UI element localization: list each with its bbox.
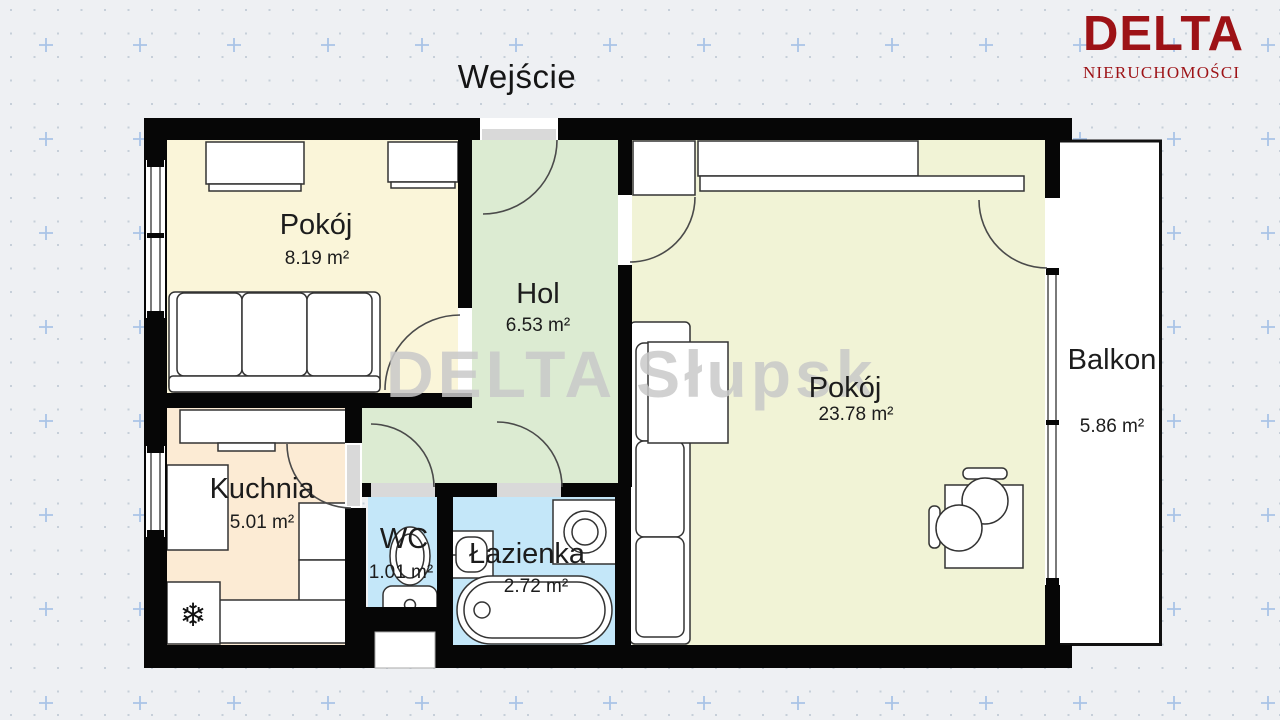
side-table [388,142,458,182]
wall-kuchnia-hol-upper [345,408,362,443]
entrance-title: Wejście [397,58,637,96]
kitchen-counter-bottom [218,600,352,643]
watermark: DELTA Słupsk [386,337,876,411]
entrance-threshold [482,129,556,140]
wall-lazienka-pokoj2 [615,487,631,648]
window-cap [147,233,164,238]
window-balcony [1045,268,1060,585]
window-cap [1046,420,1059,425]
label-pokoj-2: Pokój [809,372,882,404]
area-pokoj-1: 8.19 m² [285,248,349,269]
wall-bottom [144,645,1072,668]
sofa-cushion [636,441,684,537]
kitchen-counter-top [180,410,357,443]
area-pokoj-2: 23.78 m² [819,404,894,425]
area-wc: 1.01 m² [369,562,433,583]
wall-wc-lazienka-top [435,483,497,497]
agency-logo: DELTA NIERUCHOMOŚCI [1083,10,1244,81]
floor-plan-page: ❄ [0,0,1280,720]
label-pokoj-1: Pokój [280,209,353,241]
floor-hol-corridor [362,408,618,483]
wall-top-right [558,118,1072,140]
open-door-leaf [633,141,695,195]
window-pokoj1 [146,160,165,318]
wall-lazienka-top [561,483,618,497]
label-wc: WC [380,523,428,555]
sofa-cushion [307,293,372,376]
wardrobe [698,141,918,176]
floor-plan: ❄ [0,0,1280,720]
label-balkon: Balkon [1068,344,1157,376]
window-cap [1046,578,1059,586]
window-kuchnia [146,446,165,537]
area-kuchnia: 5.01 m² [230,512,294,533]
kitchen-counter-right [299,503,353,560]
window-cap [147,530,164,537]
pokoj2-door-opening [618,195,632,265]
wall-pokoj1-hol [458,140,472,308]
window-cap [147,160,164,167]
agency-logo-tagline: NIERUCHOMOŚCI [1083,64,1244,81]
bathtub-drain [474,602,490,618]
wardrobe-shelf [700,176,1024,191]
label-kuchnia: Kuchnia [210,473,316,505]
window-cap [147,446,164,453]
sofa-cushion [636,537,684,637]
sofa-cushion [177,293,242,376]
area-lazienka: 2.72 m² [504,576,568,597]
kitchen-shelf [218,443,275,451]
shaft-recess [375,632,435,668]
window-cap [147,311,164,318]
wall-hol-pokoj2-upper [618,140,632,195]
side-table-edge [391,182,455,188]
agency-logo-brand: DELTA [1083,10,1244,59]
sofa-cushion [242,293,307,376]
area-hol: 6.53 m² [506,315,570,336]
balcony-door-opening [1045,198,1060,268]
desk-edge [209,184,301,191]
kuchnia-door-threshold [347,445,360,506]
balcony [1060,140,1162,646]
desk [206,142,304,184]
chair-seat [936,505,982,551]
window-cap [1046,268,1059,275]
wall-top-left [144,118,480,140]
wc-door-threshold [371,483,435,497]
balcony-floor [1060,140,1162,646]
label-hol: Hol [516,278,560,310]
wall-wc-lazienka-divider [437,497,453,648]
label-lazienka: Łazienka [469,538,586,570]
fridge-snowflake-icon: ❄ [180,597,207,633]
lazienka-door-threshold [497,483,561,497]
sofa-backrest [169,376,380,392]
area-balkon: 5.86 m² [1080,416,1144,437]
wall-wc-top [362,483,371,497]
